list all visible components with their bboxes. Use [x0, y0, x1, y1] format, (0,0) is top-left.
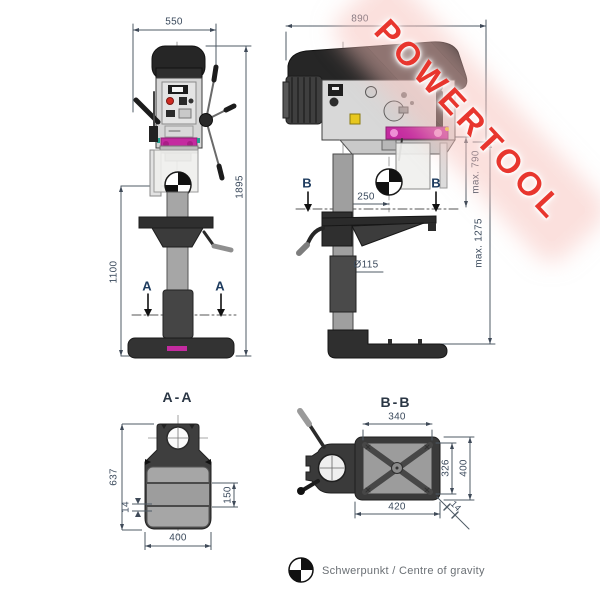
front-dim-column-height: 1100	[109, 261, 120, 284]
bb-dim-bottom: 420	[388, 502, 406, 513]
side-dim-throat: 250	[357, 192, 375, 203]
section-marker-a-right: A	[215, 279, 224, 294]
section-aa-title: A-A	[163, 389, 194, 405]
front-dim-total-height: 1895	[235, 175, 246, 198]
bb-dim-outer-height: 400	[459, 459, 470, 477]
section-bb-title: B-B	[381, 394, 412, 410]
bb-dim-top: 340	[388, 412, 406, 423]
front-dim-width: 550	[165, 17, 183, 28]
aa-dim-height: 637	[109, 468, 120, 486]
section-aa-drawing	[122, 415, 238, 550]
legend-cog-symbol	[289, 558, 313, 582]
aa-dim-width: 400	[169, 533, 187, 544]
section-marker-a-left: A	[142, 279, 151, 294]
side-dim-column-diameter: Ø115	[354, 260, 379, 271]
legend-label: Schwerpunkt / Centre of gravity	[322, 565, 485, 577]
section-marker-b-left: B	[302, 176, 311, 191]
front-view-drawing	[121, 24, 251, 360]
bb-dim-inner-height: 326	[441, 459, 452, 477]
side-cog-symbol	[376, 169, 402, 195]
section-marker-b-right: B	[431, 176, 440, 191]
technical-drawing-page: 550 1895 1100 A A 890 250 max. 790 max. …	[0, 0, 600, 600]
side-dim-max-table: max. 1275	[474, 218, 485, 267]
aa-dim-inner: 150	[223, 486, 234, 504]
drawing-canvas	[0, 0, 600, 600]
aa-dim-rib: 14	[121, 501, 132, 513]
